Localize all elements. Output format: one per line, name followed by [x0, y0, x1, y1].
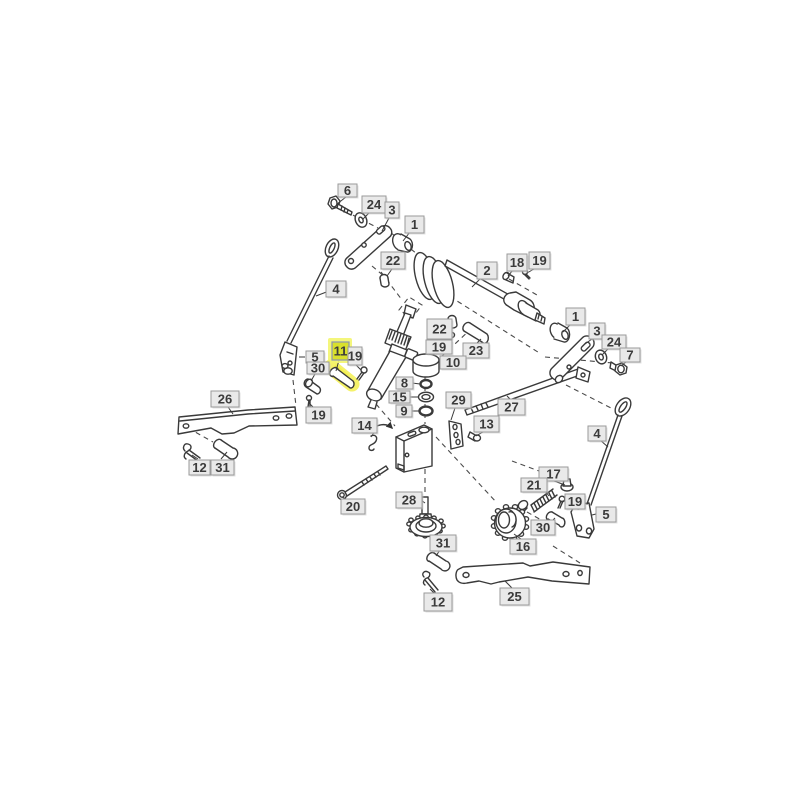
svg-text:19: 19 — [432, 340, 446, 355]
svg-text:1: 1 — [572, 309, 579, 324]
svg-text:8: 8 — [401, 376, 408, 391]
svg-text:19: 19 — [311, 408, 325, 423]
svg-text:27: 27 — [504, 400, 518, 415]
svg-text:2: 2 — [483, 263, 490, 278]
svg-text:4: 4 — [332, 282, 340, 297]
svg-text:11: 11 — [334, 344, 348, 359]
svg-text:31: 31 — [436, 536, 450, 551]
svg-text:24: 24 — [607, 335, 622, 350]
svg-text:21: 21 — [527, 478, 541, 493]
svg-text:24: 24 — [367, 197, 382, 212]
svg-text:13: 13 — [479, 417, 493, 432]
svg-text:23: 23 — [469, 343, 483, 358]
svg-text:28: 28 — [402, 493, 416, 508]
svg-text:31: 31 — [215, 460, 229, 475]
svg-text:3: 3 — [388, 203, 395, 218]
svg-text:10: 10 — [446, 355, 460, 370]
svg-text:4: 4 — [593, 426, 601, 441]
svg-text:15: 15 — [392, 390, 406, 405]
svg-text:30: 30 — [536, 520, 550, 535]
svg-text:20: 20 — [346, 499, 360, 514]
svg-text:6: 6 — [344, 183, 351, 198]
svg-text:29: 29 — [451, 393, 465, 408]
svg-text:12: 12 — [431, 595, 445, 610]
svg-text:19: 19 — [532, 253, 546, 268]
svg-text:22: 22 — [386, 253, 400, 268]
svg-text:22: 22 — [432, 322, 446, 337]
svg-text:17: 17 — [546, 467, 560, 482]
svg-text:18: 18 — [510, 255, 524, 270]
svg-text:26: 26 — [218, 392, 232, 407]
svg-text:25: 25 — [507, 589, 521, 604]
svg-text:16: 16 — [516, 539, 530, 554]
svg-text:19: 19 — [348, 349, 362, 364]
svg-text:30: 30 — [311, 361, 325, 376]
svg-text:19: 19 — [568, 494, 582, 509]
svg-text:5: 5 — [602, 507, 609, 522]
svg-text:3: 3 — [593, 324, 600, 339]
svg-text:12: 12 — [192, 460, 206, 475]
svg-text:7: 7 — [626, 348, 633, 363]
svg-text:1: 1 — [411, 217, 418, 232]
svg-text:9: 9 — [400, 404, 407, 419]
svg-text:14: 14 — [357, 418, 372, 433]
